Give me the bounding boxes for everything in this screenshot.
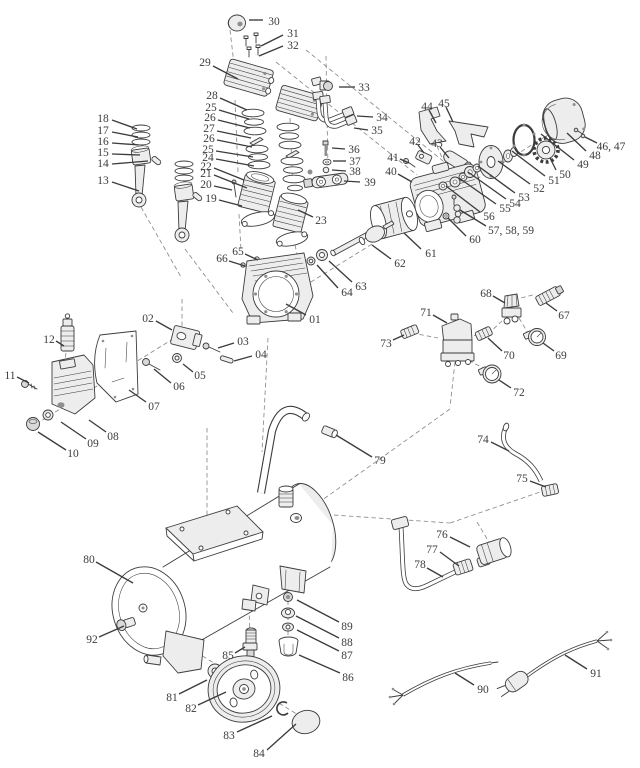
part-label-52: 52 <box>533 183 545 195</box>
leader-line <box>440 552 459 566</box>
part-label-76: 76 <box>436 529 448 541</box>
part-label-49: 49 <box>577 159 589 171</box>
leader-line <box>216 151 253 157</box>
leader-line <box>183 364 193 372</box>
leader-line <box>154 369 171 383</box>
part-label-63: 63 <box>355 281 367 293</box>
part-label-06: 06 <box>173 381 185 393</box>
leader-line <box>543 343 554 351</box>
leader-line <box>404 233 421 249</box>
part-rear-foot-bracket <box>280 566 306 593</box>
part-drain-boss <box>242 599 256 611</box>
leader-line <box>393 335 404 340</box>
part-84-hub-cap <box>290 707 323 736</box>
part-label-14: 14 <box>97 158 109 170</box>
part-label-70: 70 <box>503 350 515 362</box>
leader-line <box>499 380 511 388</box>
part-49-stator-ring <box>513 124 536 157</box>
part-label-18: 18 <box>97 113 109 125</box>
leader-line <box>220 98 247 110</box>
leader-line <box>299 655 340 673</box>
part-label-54: 54 <box>509 198 521 210</box>
part-62-crankshaft <box>330 221 394 257</box>
leader-line <box>336 435 372 457</box>
part-label-82: 82 <box>185 703 197 715</box>
part-89-locknut <box>284 593 293 602</box>
part-09-ring <box>43 410 53 420</box>
part-label-60: 60 <box>469 234 481 246</box>
part-label-41: 41 <box>387 152 399 164</box>
leader-line <box>565 655 587 669</box>
part-29-cylinder-head <box>223 58 276 97</box>
part-37-seal-washer <box>323 159 331 165</box>
leader-line <box>455 673 474 685</box>
part-label-23: 23 <box>315 215 327 227</box>
part-68-regulator <box>502 294 521 324</box>
part-label-55: 55 <box>499 203 511 215</box>
part-label-65: 65 <box>232 246 244 258</box>
part-label-56: 56 <box>483 211 495 223</box>
part-03-bolt <box>203 343 220 352</box>
part-label-28: 28 <box>206 90 218 102</box>
part-label-32: 32 <box>287 40 299 52</box>
part-70-fitting <box>475 326 493 341</box>
leader-line <box>156 321 172 330</box>
part-05-washer <box>173 354 182 363</box>
leader-line <box>450 537 470 547</box>
part-label-45: 45 <box>438 98 450 110</box>
part-label-75: 75 <box>516 473 528 485</box>
part-80-tank <box>101 477 346 665</box>
part-label-40: 40 <box>385 166 397 178</box>
part-label-78: 78 <box>414 559 426 571</box>
part-34-tube <box>313 91 355 120</box>
leader-line <box>214 175 247 188</box>
part-label-04: 04 <box>255 349 267 361</box>
part-10-cap <box>27 418 40 431</box>
part-label-83: 83 <box>223 730 235 742</box>
leader-line <box>329 261 352 282</box>
part-label-90: 90 <box>477 684 489 696</box>
part-label-81: 81 <box>166 692 178 704</box>
part-67-fitting <box>535 284 564 306</box>
part-label-31: 31 <box>287 28 299 40</box>
part-19-flange-gasket <box>240 209 276 229</box>
part-label-09: 09 <box>87 438 99 450</box>
part-label-51: 51 <box>548 175 560 187</box>
leader-line <box>234 356 252 361</box>
part-label-05: 05 <box>194 370 206 382</box>
part-83-retaining-clip <box>277 702 288 715</box>
part-label-30: 30 <box>268 16 280 28</box>
exploded-parts-diagram: 3031322928252627262524222120191817161514… <box>0 0 640 768</box>
part-87-washer <box>283 623 294 631</box>
part-label-85: 85 <box>222 650 234 662</box>
leader-line <box>267 724 296 750</box>
part-label-87: 87 <box>341 650 353 662</box>
leader-line <box>112 182 139 191</box>
leader-line <box>585 137 597 143</box>
part-13-18-piston-assembly <box>131 125 162 207</box>
part-64-washer <box>307 257 315 265</box>
part-label-29: 29 <box>199 57 211 69</box>
part-label-88: 88 <box>341 637 353 649</box>
part-label-36: 36 <box>348 144 360 156</box>
part-76-check-valve <box>473 536 514 567</box>
part-label-46-47: 46, 47 <box>597 141 626 153</box>
part-label-80: 80 <box>83 554 95 566</box>
leader-line <box>214 168 244 180</box>
leader-line <box>332 148 345 149</box>
leader-line <box>259 46 283 56</box>
part-label-89: 89 <box>341 621 353 633</box>
part-label-12: 12 <box>43 334 55 346</box>
part-tank-top-fitting <box>279 486 293 507</box>
part-label-34: 34 <box>376 112 388 124</box>
part-label-72: 72 <box>513 387 525 399</box>
part-63-bearing <box>317 250 328 261</box>
part-label-10: 10 <box>67 448 79 460</box>
leader-line <box>214 186 232 190</box>
part-86-rubber-foot <box>279 637 298 656</box>
part-label-69: 69 <box>555 350 567 362</box>
part-label-67: 67 <box>558 310 570 322</box>
part-31-32-screws <box>244 33 260 57</box>
part-labels: 3031322928252627262524222120191817161514… <box>4 16 625 760</box>
part-label-38: 38 <box>349 166 361 178</box>
part-label-66: 66 <box>216 253 228 265</box>
part-label-64: 64 <box>341 287 353 299</box>
part-56-washer <box>439 182 447 190</box>
part-79-cap-fitting <box>321 425 338 438</box>
leader-line <box>89 420 106 432</box>
part-label-91: 91 <box>590 668 602 680</box>
part-label-84: 84 <box>253 748 265 760</box>
part-label-07: 07 <box>148 401 160 413</box>
part-04-pin <box>220 355 234 363</box>
part-19-cylinder <box>238 169 277 213</box>
part-23-cylinder <box>273 191 310 233</box>
leader-line <box>38 432 66 450</box>
parts-art <box>22 15 613 737</box>
leader-line <box>546 303 557 311</box>
part-label-43: 43 <box>431 138 443 150</box>
leader-line <box>217 140 252 147</box>
part-75-tube-nut <box>541 483 559 496</box>
part-38-valve-ball <box>308 167 329 174</box>
leader-line <box>372 245 391 259</box>
part-label-42: 42 <box>409 136 421 148</box>
part-label-62: 62 <box>394 258 406 270</box>
leader-line <box>216 159 254 166</box>
leader-line <box>261 35 283 46</box>
part-label-39: 39 <box>364 177 376 189</box>
leader-line <box>332 170 346 171</box>
part-08-filter-housing <box>52 355 95 414</box>
part-label-73: 73 <box>380 338 392 350</box>
part-label-86: 86 <box>342 672 354 684</box>
part-valve-plate-stack-right <box>277 123 305 191</box>
part-39-manifold <box>303 173 348 190</box>
leader-line <box>493 296 505 303</box>
part-45-bracket <box>449 121 488 147</box>
part-02-intake-elbow <box>170 325 203 350</box>
part-33-elbow-fitting <box>311 77 332 91</box>
part-label-68: 68 <box>480 288 492 300</box>
part-label-13: 13 <box>97 175 109 187</box>
part-label-92: 92 <box>86 634 98 646</box>
leader-line <box>357 116 373 117</box>
part-77-nut <box>453 559 474 576</box>
leader-line <box>488 338 502 351</box>
part-label-08: 08 <box>107 431 119 443</box>
part-82-wheel <box>202 649 286 729</box>
part-label-19: 19 <box>205 193 217 205</box>
part-91-power-cord <box>495 631 612 700</box>
leader-line <box>61 422 86 439</box>
part-tank-outlet-port <box>291 514 302 523</box>
part-label-02: 02 <box>142 313 154 325</box>
part-label-01: 01 <box>309 314 321 326</box>
part-label-74: 74 <box>477 434 489 446</box>
part-tank-handle <box>261 410 311 493</box>
part-30-knob <box>228 15 245 31</box>
part-label-79: 79 <box>374 455 386 467</box>
leader-line <box>433 315 447 323</box>
part-73-fitting <box>400 324 419 339</box>
part-78-outlet-tube <box>391 516 455 589</box>
leader-line <box>297 600 339 622</box>
part-label-57-58-59: 57, 58, 59 <box>488 225 534 237</box>
part-label-77: 77 <box>426 544 438 556</box>
leader-line <box>427 568 443 577</box>
part-label-20: 20 <box>200 179 212 191</box>
part-label-11: 11 <box>4 370 15 382</box>
part-88-flange-nut <box>282 608 295 618</box>
part-label-35: 35 <box>371 125 383 137</box>
part-label-50: 50 <box>559 169 571 181</box>
part-label-61: 61 <box>425 248 437 260</box>
part-label-03: 03 <box>237 336 249 348</box>
leader-line <box>179 680 207 694</box>
part-label-48: 48 <box>589 150 601 162</box>
part-piston-assembly-2 <box>174 161 203 242</box>
part-label-44: 44 <box>421 101 433 113</box>
leader-line <box>297 630 339 651</box>
part-label-71: 71 <box>420 307 432 319</box>
leader-line <box>398 174 412 182</box>
part-label-33: 33 <box>358 82 370 94</box>
leader-line <box>530 481 546 487</box>
part-85-drain-valve <box>243 628 257 657</box>
leader-line <box>498 161 530 184</box>
part-72-gauge <box>478 365 501 383</box>
part-11-screw <box>22 381 38 390</box>
leader-line <box>112 120 137 129</box>
part-06-bolt <box>143 359 161 371</box>
part-23-flange-gasket <box>275 229 309 248</box>
leader-line <box>218 343 234 348</box>
